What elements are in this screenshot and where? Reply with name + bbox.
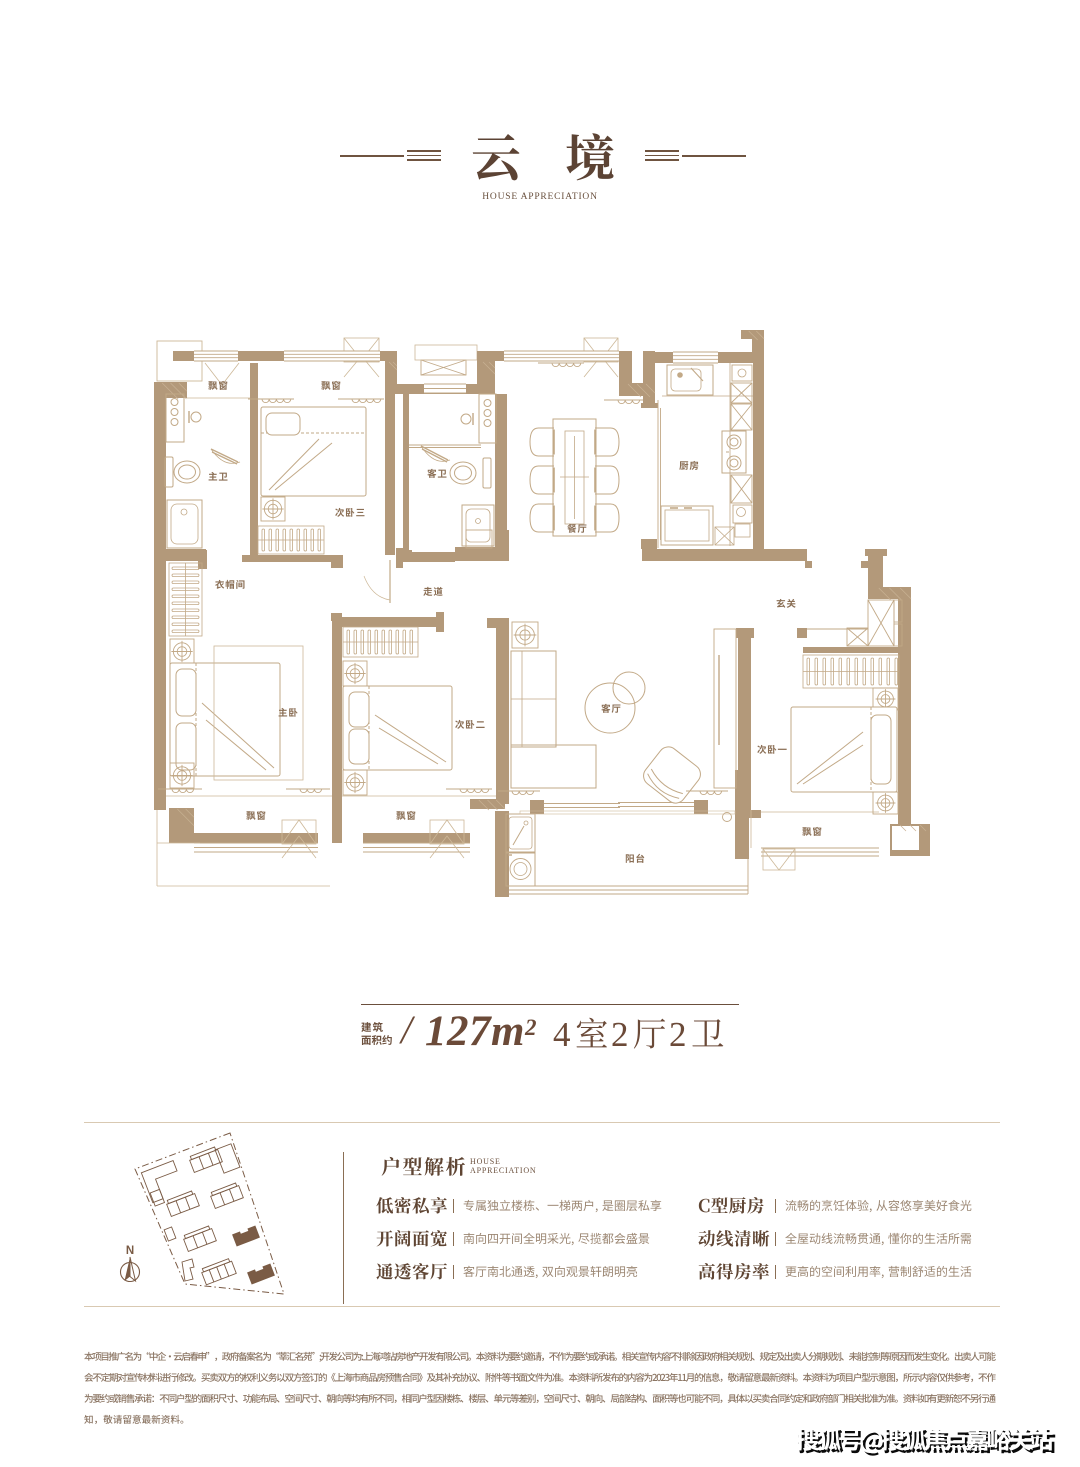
svg-text:N: N [126,1245,134,1257]
